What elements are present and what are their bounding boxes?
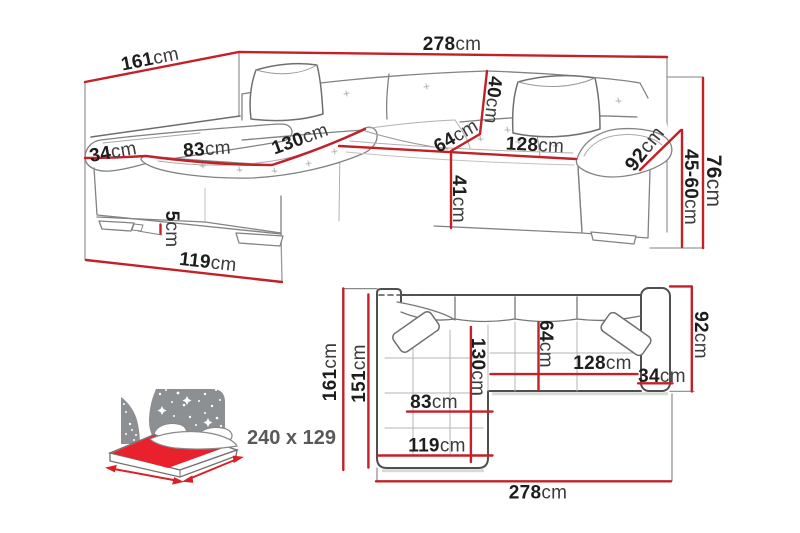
svg-text:278cm: 278cm xyxy=(509,482,568,503)
svg-text:83cm: 83cm xyxy=(410,392,458,413)
svg-text:92cm: 92cm xyxy=(690,311,711,359)
svg-text:128cm: 128cm xyxy=(573,353,632,374)
svg-text:5cm: 5cm xyxy=(162,211,183,248)
svg-text:41cm: 41cm xyxy=(449,175,470,223)
svg-text:130cm: 130cm xyxy=(468,338,489,397)
svg-text:161cm: 161cm xyxy=(320,343,341,402)
svg-text:278cm: 278cm xyxy=(423,34,482,55)
svg-text:83cm: 83cm xyxy=(182,137,231,161)
svg-text:64cm: 64cm xyxy=(536,320,557,368)
svg-text:151cm: 151cm xyxy=(349,344,370,403)
svg-text:45-60cm: 45-60cm xyxy=(681,149,702,225)
svg-text:240 x 129: 240 x 129 xyxy=(247,427,336,449)
svg-text:76cm: 76cm xyxy=(703,155,726,208)
svg-text:128cm: 128cm xyxy=(505,133,565,157)
svg-text:34cm: 34cm xyxy=(638,366,686,387)
svg-text:119cm: 119cm xyxy=(408,435,466,456)
